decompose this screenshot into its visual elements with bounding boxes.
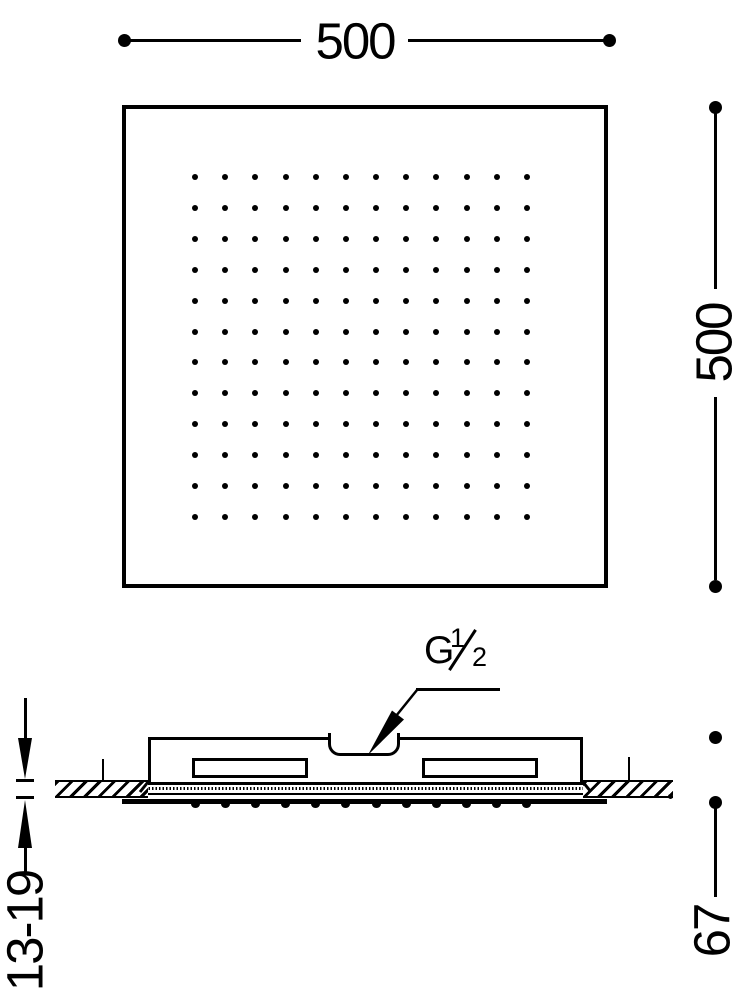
nozzle-dot: [494, 174, 500, 180]
nozzle-dot: [283, 329, 289, 335]
nozzle-dot: [283, 390, 289, 396]
nozzle-dot: [403, 298, 409, 304]
nozzle-dot: [494, 205, 500, 211]
nozzle-dot: [494, 267, 500, 273]
nozzle-dot: [283, 452, 289, 458]
nozzle-dot: [524, 236, 530, 242]
nozzle-dot: [494, 483, 500, 489]
nozzle-dot: [494, 514, 500, 520]
nozzle-dot: [313, 421, 319, 427]
total-height-dim-line: [714, 808, 717, 897]
nozzle-dot: [343, 421, 349, 427]
nozzle-dot: [313, 359, 319, 365]
nozzle-dot: [222, 359, 228, 365]
nozzle-dot: [313, 329, 319, 335]
nozzle-dot: [313, 514, 319, 520]
nozzle-dot: [464, 359, 470, 365]
nozzle-dot: [403, 390, 409, 396]
nozzle-dot: [494, 359, 500, 365]
water-chamber-right: [422, 758, 538, 778]
leader-underline: [416, 688, 500, 691]
ceiling-surface-tick-left: [102, 759, 105, 780]
nozzle-dot: [464, 174, 470, 180]
nozzle-dot: [403, 174, 409, 180]
nozzle-dot: [343, 359, 349, 365]
nozzle-dot: [403, 329, 409, 335]
nozzle-dot: [222, 483, 228, 489]
nozzle-dot: [192, 174, 198, 180]
height-dim-endpoint-bottom: [709, 580, 722, 593]
nozzle-dot: [524, 483, 530, 489]
nozzle-dot: [252, 236, 258, 242]
nozzle-dot: [222, 236, 228, 242]
nozzle-dot: [373, 174, 379, 180]
nozzle-dot: [192, 298, 198, 304]
nozzle-dot: [252, 483, 258, 489]
nozzle-dot: [343, 267, 349, 273]
nozzle-dot: [252, 174, 258, 180]
nozzle-dot: [313, 452, 319, 458]
nozzle-dot: [343, 390, 349, 396]
nozzle-dot: [373, 390, 379, 396]
nozzle-dot: [403, 236, 409, 242]
nozzle-dot: [252, 329, 258, 335]
nozzle-dot: [192, 514, 198, 520]
nozzle-dot: [373, 329, 379, 335]
nozzle-dot: [494, 390, 500, 396]
nozzle-dot: [222, 205, 228, 211]
nozzle-dot: [433, 205, 439, 211]
nozzle-dot: [494, 236, 500, 242]
nozzle-dot: [433, 514, 439, 520]
thickness-dim-tick-bottom: [16, 796, 34, 799]
nozzle-dot: [403, 514, 409, 520]
nozzle-dot: [494, 298, 500, 304]
nozzle-dot: [192, 390, 198, 396]
nozzle-dot: [433, 483, 439, 489]
nozzle-dot: [403, 205, 409, 211]
nozzle-dot: [403, 483, 409, 489]
nozzle-dot: [252, 359, 258, 365]
nozzle-dot: [192, 421, 198, 427]
nozzle-dot: [313, 236, 319, 242]
nozzle-dot: [524, 390, 530, 396]
nozzle-dot: [524, 174, 530, 180]
nozzle-dot: [373, 421, 379, 427]
nozzle-dot: [373, 205, 379, 211]
nozzle-dot: [252, 298, 258, 304]
ceiling-section-left: [55, 780, 148, 798]
width-dim-line-right: [408, 39, 604, 42]
nozzle-dot: [192, 359, 198, 365]
nozzle-dot: [433, 359, 439, 365]
height-dim-line-bottom: [714, 397, 717, 580]
connection-label-denominator: 2: [472, 644, 487, 671]
nozzle-dot: [343, 205, 349, 211]
nozzle-dot: [252, 514, 258, 520]
nozzle-dot: [433, 390, 439, 396]
nozzle-dot: [433, 236, 439, 242]
ceiling-thickness-dimension-label: 13-19: [0, 871, 51, 991]
thickness-dim-line-bottom: [24, 846, 27, 873]
nozzle-dot: [222, 329, 228, 335]
total-height-ref-dot-bottom: [709, 796, 722, 809]
nozzle-dot: [283, 483, 289, 489]
nozzle-dot: [373, 514, 379, 520]
nozzle-dot: [343, 483, 349, 489]
nozzle-dot: [283, 267, 289, 273]
nozzle-dot: [283, 236, 289, 242]
ceiling-surface-tick-right: [628, 757, 631, 780]
connection-recess-notch: [328, 733, 400, 756]
leader-line: [396, 690, 417, 716]
nozzle-dot: [192, 205, 198, 211]
nozzle-dot: [252, 267, 258, 273]
nozzle-dot: [222, 390, 228, 396]
nozzle-dot: [192, 483, 198, 489]
height-dim-endpoint-top: [709, 101, 722, 114]
nozzle-dot: [433, 421, 439, 427]
thickness-dim-tick-top: [16, 779, 34, 782]
nozzle-dot: [524, 514, 530, 520]
nozzle-dot: [252, 421, 258, 427]
nozzle-dot: [464, 329, 470, 335]
thickness-arrow-up: [18, 800, 32, 848]
water-chamber-left: [192, 758, 308, 778]
nozzle-dot: [313, 298, 319, 304]
total-height-dimension-label: 67: [687, 905, 738, 958]
nozzle-dot: [283, 205, 289, 211]
nozzle-dot: [222, 174, 228, 180]
thickness-arrow-down: [18, 738, 32, 779]
nozzle-dot: [433, 298, 439, 304]
nozzle-dot: [403, 421, 409, 427]
nozzle-dot: [192, 452, 198, 458]
nozzle-dot: [343, 514, 349, 520]
nozzle-dot: [494, 452, 500, 458]
nozzle-dot: [433, 452, 439, 458]
nozzle-dot: [403, 359, 409, 365]
nozzle-dot: [343, 174, 349, 180]
width-dim-endpoint-right: [603, 34, 616, 47]
nozzle-dot: [464, 452, 470, 458]
nozzle-dot: [343, 236, 349, 242]
nozzle-dot: [464, 205, 470, 211]
height-dim-line-top: [714, 113, 717, 289]
gasket-stipple-line: [145, 787, 586, 790]
nozzle-dot: [373, 267, 379, 273]
technical-drawing-sheet: 500 500 G 1 2 13-19 67: [0, 0, 752, 1000]
nozzle-dot: [373, 483, 379, 489]
nozzle-dot: [222, 421, 228, 427]
nozzle-dot: [524, 298, 530, 304]
faceplate-side-profile: [122, 793, 607, 804]
nozzle-dot: [494, 329, 500, 335]
width-dim-line-left: [129, 39, 301, 42]
nozzle-dot: [313, 174, 319, 180]
nozzle-dot: [343, 452, 349, 458]
nozzle-dot: [283, 174, 289, 180]
ceiling-section-right: [583, 780, 673, 798]
nozzle-dot: [252, 452, 258, 458]
width-dimension-label: 500: [315, 15, 394, 66]
nozzle-dot: [283, 359, 289, 365]
nozzle-dot: [313, 205, 319, 211]
nozzle-dot: [464, 514, 470, 520]
nozzle-dot: [313, 267, 319, 273]
nozzle-dot: [464, 267, 470, 273]
nozzle-dot: [524, 452, 530, 458]
nozzle-dot: [433, 267, 439, 273]
height-dimension-label: 500: [688, 303, 739, 382]
total-height-ref-dot-top: [709, 731, 722, 744]
nozzle-dot: [192, 267, 198, 273]
nozzle-dot: [343, 298, 349, 304]
nozzle-dot: [373, 359, 379, 365]
nozzle-dot: [222, 267, 228, 273]
nozzle-dot: [464, 483, 470, 489]
nozzle-dot: [283, 514, 289, 520]
nozzle-dot: [343, 329, 349, 335]
nozzle-dot: [464, 421, 470, 427]
nozzle-dot: [464, 236, 470, 242]
nozzle-dot: [524, 205, 530, 211]
nozzle-dot: [283, 421, 289, 427]
nozzle-dot: [524, 359, 530, 365]
nozzle-dot: [222, 452, 228, 458]
nozzle-dot: [373, 298, 379, 304]
nozzle-dot: [524, 421, 530, 427]
nozzle-dot: [222, 514, 228, 520]
thickness-dim-line-top: [24, 698, 27, 739]
nozzle-dot: [283, 298, 289, 304]
nozzle-dot: [252, 205, 258, 211]
nozzle-dot: [252, 390, 258, 396]
nozzle-dot: [464, 390, 470, 396]
nozzle-dot: [524, 329, 530, 335]
nozzle-dot: [313, 483, 319, 489]
nozzle-dot: [403, 452, 409, 458]
nozzle-dot: [313, 390, 319, 396]
ceiling-line-end-dot: [668, 794, 673, 799]
nozzle-dot: [524, 267, 530, 273]
nozzle-dot: [192, 236, 198, 242]
nozzle-dot: [494, 421, 500, 427]
nozzle-dot: [373, 236, 379, 242]
nozzle-dot: [192, 329, 198, 335]
nozzle-dot: [433, 329, 439, 335]
nozzle-dot: [403, 267, 409, 273]
nozzle-dot: [464, 298, 470, 304]
nozzle-dot: [373, 452, 379, 458]
nozzle-grid: [126, 109, 604, 584]
nozzle-dot: [222, 298, 228, 304]
nozzle-dot: [433, 174, 439, 180]
